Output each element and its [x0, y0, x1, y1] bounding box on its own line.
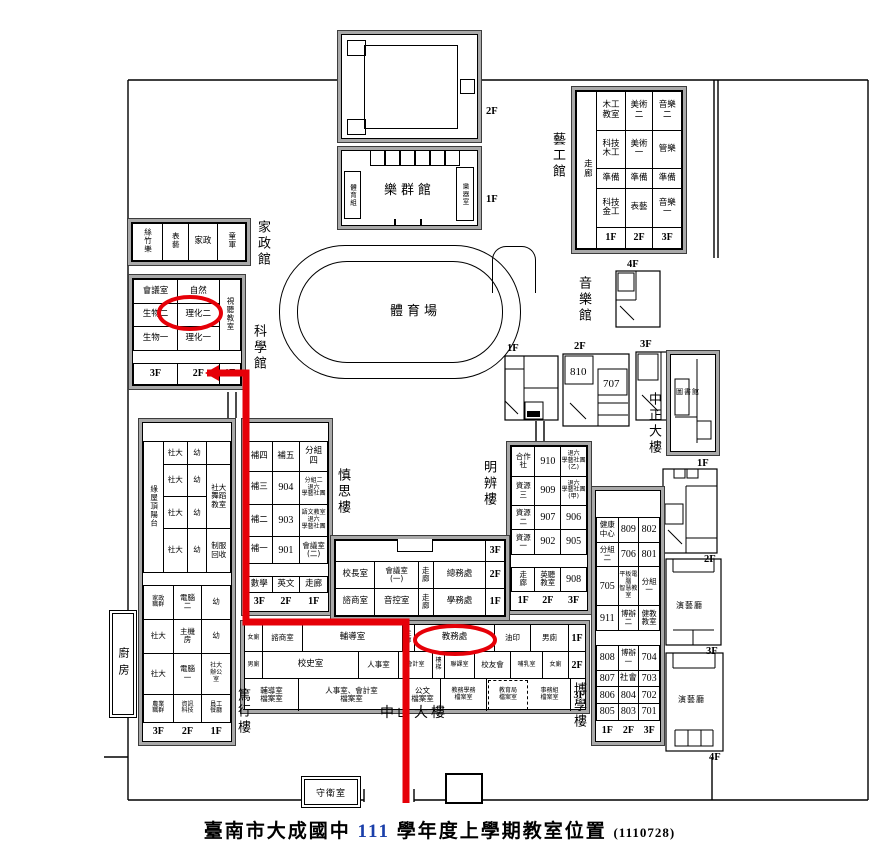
floor-label-right-1f: 1F: [697, 458, 709, 469]
room-cell: 會議室: [134, 280, 178, 304]
room-cell: 女廁: [543, 652, 569, 678]
room-cell: 706: [618, 542, 639, 567]
room-cell: 806: [597, 687, 619, 704]
room-cell: 童軍: [218, 224, 246, 261]
room-cell: 社大: [144, 619, 174, 653]
admin-roof-notch: [397, 539, 433, 552]
room-cell: 分組 二: [597, 542, 619, 567]
room-cell: 701: [639, 704, 660, 721]
room-cell: 1F: [486, 589, 505, 616]
building-label-duxing: 篤行樓: [234, 688, 253, 736]
duxing-upper-grid: 綠屋頂陽台社大幼社大幼社大 舞蹈 教室社大幼社大幼制服 回收: [143, 423, 231, 573]
title-note: (1110728): [613, 825, 675, 840]
zhongshan-room-grid: 女廁諮商室輔導室走 廊教務處油印男廁1F男廁校史室人事室會計室樓 梯聯課室校友會…: [244, 624, 586, 710]
room-cell: 美術 一: [625, 130, 653, 169]
room-cell: 909: [535, 476, 561, 506]
music-plan-4f: [615, 270, 662, 328]
room-cell: 社大: [163, 465, 187, 497]
guard-room-box: 守衛室: [301, 776, 361, 808]
room-cell: 1F: [597, 228, 626, 249]
room-cell: 電腦 一: [173, 653, 202, 694]
room-cell: 3F: [639, 721, 660, 742]
room-cell: 音控室: [375, 589, 418, 616]
room-cell: 樓 梯: [433, 652, 445, 678]
room-cell: 哺乳室: [511, 652, 543, 678]
room-cell: 3F: [653, 228, 682, 249]
room-cell: 退六 學藝社團 (乙): [561, 447, 587, 477]
room-cell: 903: [272, 504, 300, 537]
title-year: 111: [358, 821, 390, 842]
room-cell: 幼: [202, 619, 231, 653]
room-cell: 科技 木工: [597, 130, 626, 169]
room-cell: 聯課室: [445, 652, 475, 678]
building-name-lequn: 樂群館: [342, 151, 477, 225]
room-cell: 走 廊: [418, 589, 433, 616]
room-cell: 會議室 (一): [375, 562, 418, 589]
room-cell: 事務組 檔案室: [529, 679, 571, 711]
right-plan-2f: [662, 468, 719, 554]
room-cell: 表藝: [625, 189, 653, 228]
room-cell: 社大: [163, 529, 187, 573]
mingbian-room-grid: 合作 社910退六 學藝社團 (乙)資源 三909退六 學藝社團 (甲)資源 二…: [511, 446, 587, 610]
room-cell: 2F: [625, 228, 653, 249]
room-cell: 音樂 一: [653, 189, 682, 228]
room-cell: 社大: [163, 442, 187, 465]
yanyiting-label-3f: 演藝廳: [676, 600, 703, 611]
title-rest: 學年度上學期教室位置: [397, 821, 607, 842]
room-cell: 1F: [202, 723, 231, 742]
room-cell: 合作 社: [512, 447, 535, 477]
room-cell: 輔導室: [303, 625, 403, 651]
room-cell: 資訊 科技: [173, 694, 202, 722]
room-cell: 補四: [247, 442, 273, 472]
duxing-lower-grid: 家政 職群電腦 二幼社大主機 房幼社大電腦 一社大 辦公 室農業 職群資訊 科技…: [143, 585, 231, 741]
room-cell: 家政 職群: [144, 586, 174, 620]
room-cell: 博辦 一: [618, 646, 639, 671]
room-cell: 809: [618, 518, 639, 543]
room-cell: 數學: [247, 577, 273, 593]
room-cell: 走廊: [300, 577, 328, 593]
floor-label-music-4f: 4F: [627, 259, 639, 270]
room-cell: 男廁: [531, 625, 569, 651]
room-cell: 幼: [187, 529, 207, 573]
room-cell: 2F: [173, 723, 202, 742]
room-cell: 綠屋頂陽台: [144, 442, 164, 573]
room-cell: 807: [597, 670, 619, 687]
floor-label-right-2f: 2F: [704, 554, 716, 565]
building-label-shensi: 慎思樓: [334, 468, 353, 516]
guard-room-label: 守衛室: [316, 786, 346, 799]
room-cell: 905: [561, 530, 587, 554]
room-cell: 社大 舞蹈 教室: [207, 465, 231, 529]
building-mingbian: 合作 社910退六 學藝社團 (乙)資源 三909退六 學藝社團 (甲)資源 二…: [506, 441, 592, 615]
room-cell: 2F: [272, 593, 300, 612]
campus-map: 2F 體育組 樂器室 樂群館 1F 走廊木工 教室美術 二音樂 二科技 木工美術…: [0, 0, 879, 860]
yigong-room-grid: 走廊木工 教室美術 二音樂 二科技 木工美術 一管樂準備準備準備科技 金工表藝音…: [576, 91, 682, 249]
building-label-zhongshan: 中山大樓: [380, 702, 448, 722]
room-cell: 管樂: [653, 130, 682, 169]
court-corner-box: [347, 40, 366, 56]
room-cell: 幼: [187, 442, 207, 465]
room-cell: 校長室: [336, 562, 375, 589]
room-cell: 走 廊: [512, 567, 535, 591]
door-tick: [420, 219, 422, 225]
room-cell: 諮商室: [336, 589, 375, 616]
floor-label-right-4f: 4F: [709, 752, 721, 763]
room-cell: 社大 辦公 室: [202, 653, 231, 694]
room-cell: 幼: [202, 586, 231, 620]
room-cell: 分組二 退六 學藝社團: [300, 472, 328, 505]
building-yigong: 走廊木工 教室美術 二音樂 二科技 木工美術 一管樂準備準備準備科技 金工表藝音…: [571, 86, 687, 254]
room-cell: 油印: [495, 625, 531, 651]
boxue-room-grid: 健康 中心809802分組 二706801705平板電腦 智慧教室分組 一911…: [596, 491, 660, 741]
room-cell: 生物二: [134, 303, 178, 327]
building-label-yigong: 藝工館: [549, 132, 568, 180]
room-cell: 農業 職群: [144, 694, 174, 722]
room-cell: 808: [597, 646, 619, 671]
room-cell: 3F: [561, 592, 587, 611]
room-cell: 語文教室 退六 學藝社團: [300, 504, 328, 537]
room-cell: 分組 四: [300, 442, 328, 472]
room-cell: 908: [561, 567, 587, 591]
room-cell: 906: [561, 506, 587, 530]
room-cell: 2F: [569, 652, 585, 678]
room-cell: 1F: [219, 364, 240, 385]
room-cell: 理化二: [177, 303, 219, 327]
room-cell: 自然: [177, 280, 219, 304]
floor-label-lequn-2f: 2F: [486, 106, 498, 117]
room-cell: 補一: [247, 537, 273, 564]
library-plan: [671, 355, 715, 451]
room-cell: 電腦 二: [173, 586, 202, 620]
room-cell: 男廁: [245, 652, 263, 678]
court-outline: [364, 45, 458, 129]
building-label-jiazheng: 家政館: [254, 220, 273, 268]
room-cell: 家政: [188, 224, 218, 261]
room-cell: 2F: [535, 592, 561, 611]
room-cell: [247, 423, 328, 442]
field-bump: [492, 246, 536, 293]
room-cell: 女廁: [245, 625, 263, 651]
room-cell: 補二: [247, 504, 273, 537]
room-cell: 804: [618, 687, 639, 704]
room-cell: 音樂 二: [653, 92, 682, 131]
room-cell: 會計室: [399, 652, 433, 678]
room-cell: 資源 一: [512, 530, 535, 554]
room-cell: 走廊: [577, 92, 597, 249]
jiazheng-room-grid: 絲竹樂表藝家政童軍: [132, 223, 246, 261]
room-cell: 補五: [272, 442, 300, 472]
room-cell: [207, 442, 231, 465]
room-cell: 910: [535, 447, 561, 477]
court-side-box: [460, 79, 475, 94]
room-cell: 視聽教室: [219, 280, 240, 351]
floor-label-music-1f: 1F: [507, 343, 519, 354]
building-lequn-1f: 體育組 樂器室 樂群館: [337, 146, 482, 230]
room-cell: 3F: [144, 723, 174, 742]
room-cell: 社大: [144, 653, 174, 694]
room-cell: 美術 二: [625, 92, 653, 131]
room-cell: 社大: [163, 497, 187, 529]
room-cell: 會議室 (二): [300, 537, 328, 564]
room-707: 707: [603, 378, 620, 390]
room-cell: 主機 房: [173, 619, 202, 653]
room-cell: 1F: [597, 721, 619, 742]
shensi-room-grid: 補四補五分組 四補三904分組二 退六 學藝社團補二903語文教室 退六 學藝社…: [246, 423, 328, 611]
room-cell: 907: [535, 506, 561, 530]
floor-label-lequn-1f: 1F: [486, 194, 498, 205]
room-cell: 健康 中心: [597, 518, 619, 543]
room-cell: [597, 491, 660, 518]
library-label: 圖書館: [676, 387, 700, 397]
room-cell: 平板電腦 智慧教室: [618, 567, 639, 606]
building-kexue: 會議室自然視聽教室生物二理化二生物一理化一3F2F1F: [128, 274, 246, 390]
kitchen-box: 廚房: [109, 610, 137, 718]
floor-label-music-2f: 2F: [574, 341, 586, 352]
floor-label-right-3f: 3F: [706, 646, 718, 657]
room-cell: 803: [618, 704, 639, 721]
building-lequn-2f: [337, 30, 482, 143]
room-cell: 博辦 二: [618, 606, 639, 631]
room-cell: [134, 351, 241, 364]
room-cell: 補三: [247, 472, 273, 505]
duxing-gap: [143, 573, 231, 585]
kitchen-label: 廚房: [115, 647, 131, 681]
room-cell: 準備: [625, 169, 653, 189]
room-cell: 員工 餐廳: [202, 694, 231, 722]
kexue-room-grid: 會議室自然視聽教室生物二理化二生物一理化一3F2F1F: [133, 279, 241, 385]
yanyiting-label-4f: 演藝廳: [678, 694, 705, 705]
room-cell: 705: [597, 567, 619, 606]
building-zhongshan: 女廁諮商室輔導室走 廊教務處油印男廁1F男廁校史室人事室會計室樓 梯聯課室校友會…: [240, 620, 590, 714]
room-cell: 退六 學藝社團 (甲): [561, 476, 587, 506]
gate-post-box: [445, 773, 483, 804]
music-plan-1f: [504, 355, 560, 421]
room-cell: 教務處: [415, 625, 495, 651]
room-cell: 902: [535, 530, 561, 554]
room-cell: 教育局 檔案室: [488, 680, 528, 710]
field-label: 體育場: [390, 300, 441, 319]
room-cell: 社會: [618, 670, 639, 687]
building-duxing: 綠屋頂陽台社大幼社大幼社大 舞蹈 教室社大幼社大幼制服 回收 家政 職群電腦 二…: [138, 418, 236, 746]
building-label-boxue: 博學樓: [570, 682, 589, 730]
room-cell: 學務處: [433, 589, 486, 616]
floor-label-music-3f: 3F: [640, 339, 652, 350]
room-cell: 802: [639, 518, 660, 543]
room-cell: 絲竹樂: [133, 224, 163, 261]
room-cell: 準備: [597, 169, 626, 189]
room-cell: 2F: [486, 562, 505, 589]
room-cell: 英聽 教室: [535, 567, 561, 591]
room-cell: 3F: [134, 364, 178, 385]
building-library: 圖書館: [666, 350, 720, 456]
building-boxue: 健康 中心809802分組 二706801705平板電腦 智慧教室分組 一911…: [591, 486, 665, 746]
room-cell: 準備: [653, 169, 682, 189]
room-cell: 2F: [618, 721, 639, 742]
room-cell: 703: [639, 670, 660, 687]
room-cell: [512, 554, 587, 567]
room-cell: 諮商室: [263, 625, 303, 651]
room-cell: 英文: [272, 577, 300, 593]
building-label-mingbian: 明辨樓: [480, 460, 499, 508]
building-label-kexue: 科學館: [250, 324, 269, 372]
room-cell: 904: [272, 472, 300, 505]
room-cell: [597, 631, 660, 646]
room-cell: 901: [272, 537, 300, 564]
room-cell: 1F: [300, 593, 328, 612]
page-title: 臺南市大成國中 111 學年度上學期教室位置 (1110728): [0, 816, 879, 843]
room-cell: 704: [639, 646, 660, 671]
room-cell: 幼: [187, 497, 207, 529]
room-cell: 資源 二: [512, 506, 535, 530]
building-admin: 3F校長室會議室 (一)走 廊總務處2F諮商室音控室走 廊學務處1F: [330, 535, 510, 621]
building-label-zhongzheng: 中正大樓: [645, 392, 664, 456]
room-cell: 2F: [177, 364, 219, 385]
room-cell: 木工 教室: [597, 92, 626, 131]
door-tick: [394, 219, 396, 225]
room-cell: 805: [597, 704, 619, 721]
room-cell: 1F: [569, 625, 585, 651]
room-cell: 科技 金工: [597, 189, 626, 228]
room-cell: 3F: [247, 593, 273, 612]
building-label-yinyue: 音樂館: [575, 276, 594, 324]
title-school: 臺南市大成國中: [204, 821, 351, 842]
room-cell: 分組 一: [639, 567, 660, 606]
room-cell: 走 廊: [418, 562, 433, 589]
building-jiazheng: 絲竹樂表藝家政童軍: [127, 218, 251, 266]
room-cell: 911: [597, 606, 619, 631]
room-cell: 人事室: [359, 652, 399, 678]
room-cell: 表藝: [162, 224, 188, 261]
room-cell: 校史室: [263, 652, 359, 678]
room-cell: 801: [639, 542, 660, 567]
music-plan-2f: 810 707: [562, 353, 630, 427]
room-810: 810: [570, 366, 587, 378]
room-cell: [144, 423, 231, 442]
room-cell: 理化一: [177, 327, 219, 351]
room-cell: 校友會: [475, 652, 511, 678]
room-cell: 制服 回收: [207, 529, 231, 573]
room-cell: 702: [639, 687, 660, 704]
building-shensi: 補四補五分組 四補三904分組二 退六 學藝社團補二903語文教室 退六 學藝社…: [241, 418, 333, 616]
room-cell: 健教 教室: [639, 606, 660, 631]
room-cell: 總務處: [433, 562, 486, 589]
room-cell: 輔導室 檔案室: [245, 679, 299, 711]
room-cell: 走 廊: [403, 625, 415, 651]
room-cell: 幼: [187, 465, 207, 497]
room-cell: 生物一: [134, 327, 178, 351]
room-cell: [247, 564, 328, 577]
court-corner-box: [347, 119, 366, 135]
room-cell: 3F: [486, 541, 505, 562]
room-cell: 1F: [512, 592, 535, 611]
room-cell: 資源 三: [512, 476, 535, 506]
